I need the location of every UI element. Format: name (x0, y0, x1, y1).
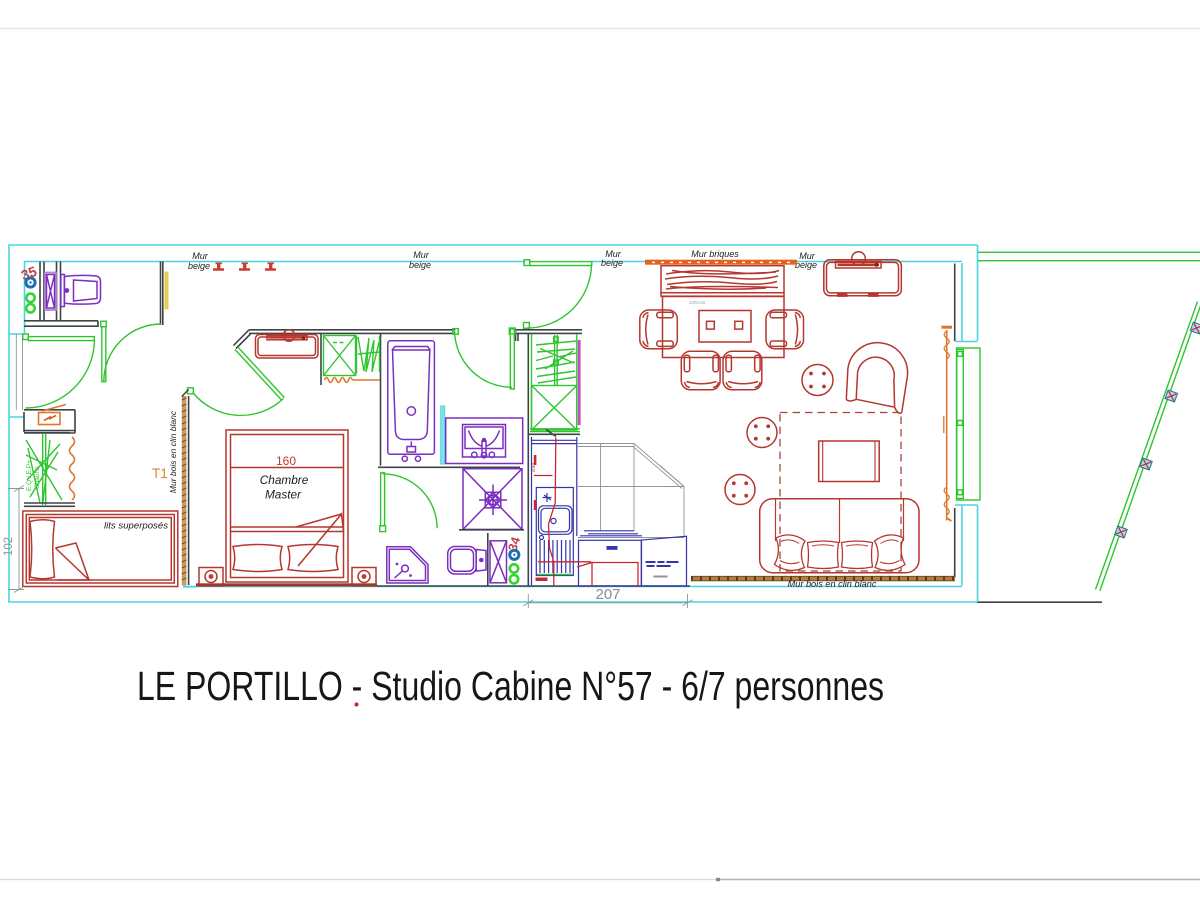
svg-text:Chambre: Chambre (260, 473, 309, 487)
svg-text:Mur bois en clin blanc: Mur bois en clin blanc (788, 579, 877, 589)
svg-text:Chauffe: Chauffe (34, 466, 41, 489)
svg-text:T1: T1 (152, 466, 168, 481)
svg-text:beige: beige (795, 260, 817, 270)
svg-text:Mur bois en clin blanc: Mur bois en clin blanc (168, 410, 178, 493)
svg-text:207: 207 (595, 586, 620, 603)
svg-text:beige: beige (601, 258, 623, 268)
svg-text:Mur briques: Mur briques (691, 249, 739, 259)
svg-text:Mur: Mur (413, 250, 430, 260)
svg-text:102: 102 (3, 537, 15, 556)
svg-text:Mur: Mur (192, 251, 209, 261)
svg-text:E.Q / E.P+: E.Q / E.P+ (26, 460, 33, 491)
svg-text:220/140: 220/140 (689, 300, 706, 305)
svg-text:160: 160 (276, 454, 296, 468)
svg-text:beige: beige (409, 260, 431, 270)
svg-text:beige: beige (188, 261, 210, 271)
svg-text:Master: Master (265, 488, 302, 502)
svg-text:lits superposés: lits superposés (104, 521, 168, 532)
svg-text:LE PORTILLO - Studio Cabine N°: LE PORTILLO - Studio Cabine N°57 - 6/7 p… (137, 663, 884, 709)
